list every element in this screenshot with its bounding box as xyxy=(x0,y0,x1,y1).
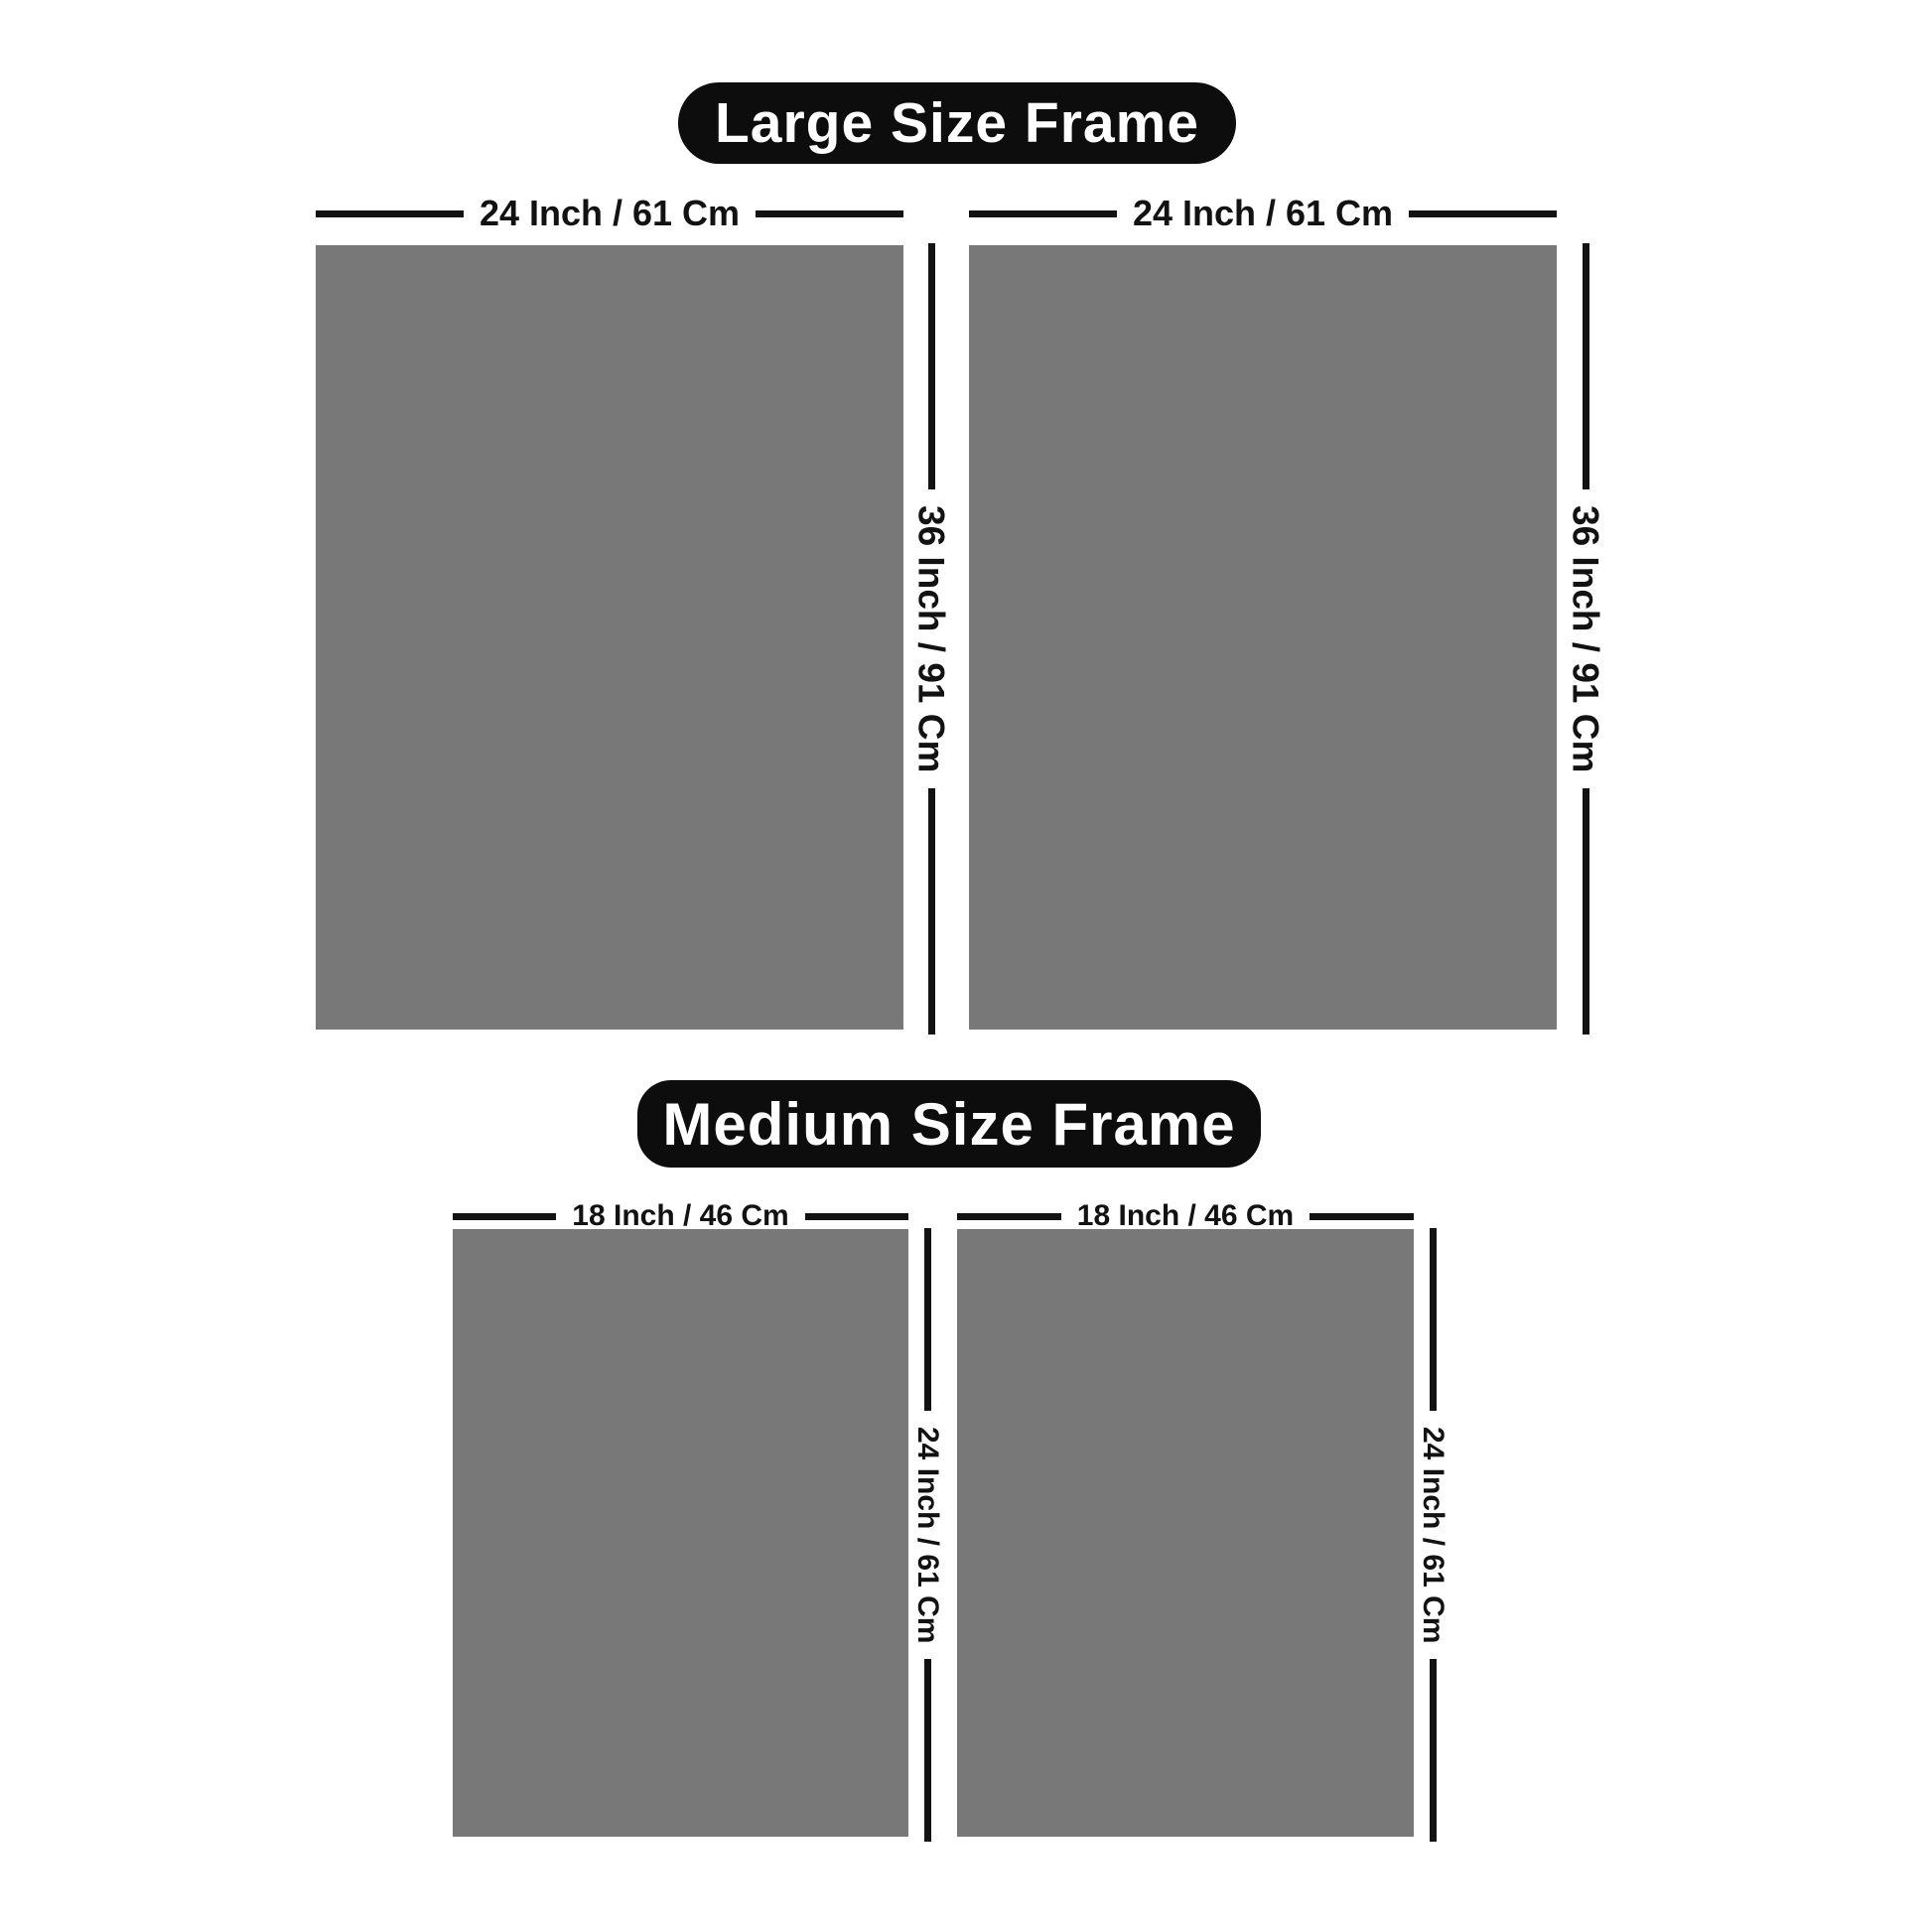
section-title: Large Size Frame xyxy=(715,90,1199,156)
dimension-line xyxy=(969,210,1117,217)
frame-preview-medium-left xyxy=(453,1229,908,1837)
dimension-line xyxy=(1583,788,1589,1035)
dimension-line xyxy=(316,210,464,217)
dimension-line xyxy=(1583,243,1589,489)
frame-preview-medium-right xyxy=(957,1229,1414,1837)
dimension-line xyxy=(928,788,935,1035)
frame-preview-large-left xyxy=(316,245,903,1030)
width-dimension-large-left: 24 Inch / 61 Cm xyxy=(316,195,903,232)
height-dimension-medium-center: 24 Inch / 61 Cm xyxy=(905,1228,949,1842)
height-dimension-large-center: 36 Inch / 91 Cm xyxy=(909,243,953,1035)
section-title: Medium Size Frame xyxy=(662,1090,1235,1159)
width-dimension-large-right: 24 Inch / 61 Cm xyxy=(969,195,1557,232)
dimension-line xyxy=(924,1659,931,1842)
dimension-line xyxy=(453,1213,556,1220)
height-dimension-label: 36 Inch / 91 Cm xyxy=(1566,499,1606,778)
dimension-line xyxy=(1430,1228,1437,1411)
dimension-line xyxy=(1430,1659,1437,1842)
height-dimension-medium-right: 24 Inch / 61 Cm xyxy=(1411,1228,1454,1842)
width-dimension-label: 24 Inch / 61 Cm xyxy=(480,196,740,231)
dimension-line xyxy=(924,1228,931,1411)
width-dimension-label: 18 Inch / 46 Cm xyxy=(1077,1201,1294,1231)
dimension-line xyxy=(928,243,935,489)
frame-size-guide: Large Size Frame 24 Inch / 61 Cm 24 Inch… xyxy=(0,0,1932,1932)
height-dimension-large-right: 36 Inch / 91 Cm xyxy=(1564,243,1607,1035)
width-dimension-label: 18 Inch / 46 Cm xyxy=(572,1201,788,1231)
dimension-line xyxy=(756,210,903,217)
height-dimension-label: 24 Inch / 61 Cm xyxy=(910,1421,944,1649)
height-dimension-label: 36 Inch / 91 Cm xyxy=(911,499,952,778)
medium-section-title-badge: Medium Size Frame xyxy=(637,1080,1261,1168)
dimension-line xyxy=(805,1213,908,1220)
width-dimension-label: 24 Inch / 61 Cm xyxy=(1133,196,1393,231)
height-dimension-label: 24 Inch / 61 Cm xyxy=(1416,1421,1449,1649)
frame-preview-large-right xyxy=(969,245,1557,1030)
dimension-line xyxy=(1409,210,1557,217)
dimension-line xyxy=(1310,1213,1414,1220)
dimension-line xyxy=(957,1213,1061,1220)
large-section-title-badge: Large Size Frame xyxy=(678,82,1236,164)
